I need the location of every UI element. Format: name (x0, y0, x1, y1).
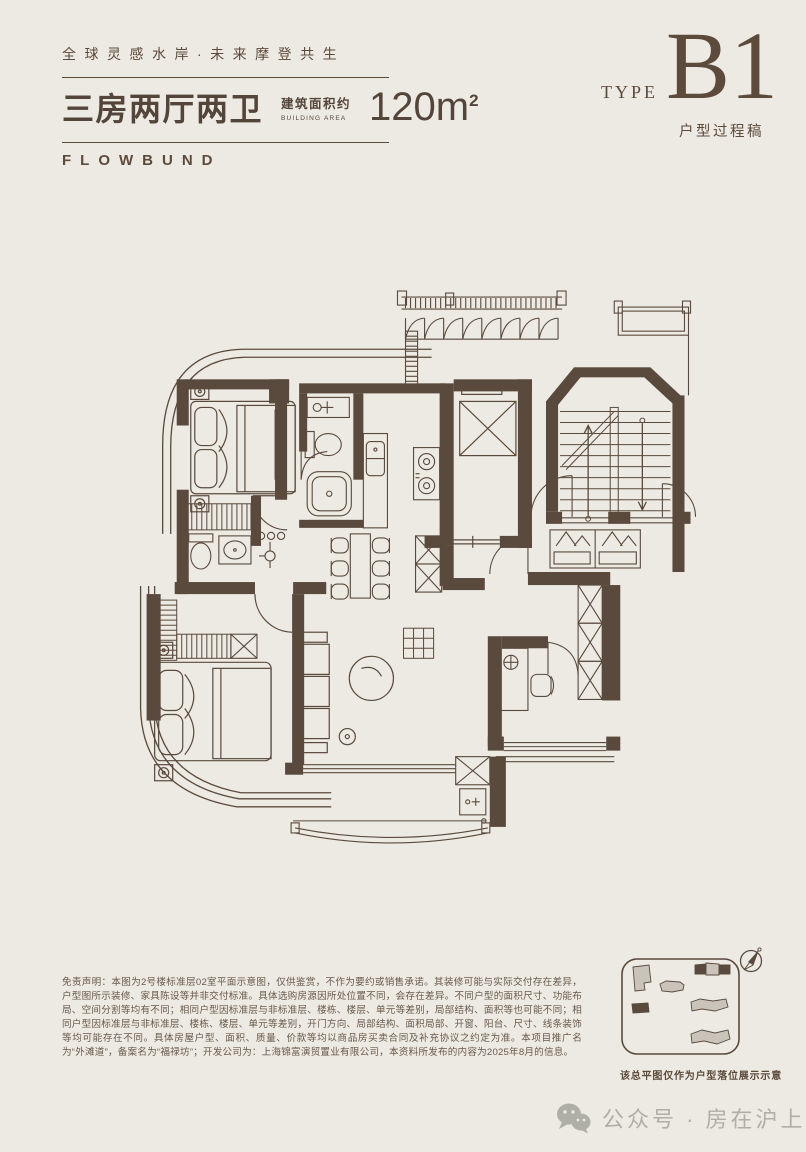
divider-bottom (62, 142, 389, 143)
highlighted-building (719, 965, 730, 974)
master-door (255, 594, 293, 632)
study-door (548, 642, 578, 674)
area-label-cn: 建筑面积约 (281, 93, 351, 112)
flyer-page: 全球灵感水岸·未来摩登共生 三房两厅两卫 建筑面积约 BUILDING AREA… (0, 0, 806, 1152)
disclaimer-text: 免责声明：本图为2号楼标准层02室平面示意图，仅供鉴赏，不作为要约或销售承诺。其… (62, 976, 582, 1059)
balcony-glass-curve (295, 828, 488, 843)
type-label: TYPE (601, 82, 658, 103)
compass-north-icon (741, 948, 762, 972)
type-code: B1 (666, 18, 778, 114)
desk-chair (531, 674, 551, 696)
desk (500, 648, 528, 710)
site-buildings (632, 963, 730, 1044)
dining-chairs (331, 538, 389, 599)
bathtub (307, 472, 351, 516)
highlighted-building (695, 964, 706, 974)
header: 全球灵感水岸·未来摩登共生 三房两厅两卫 建筑面积约 BUILDING AREA… (62, 44, 392, 169)
bathroom1 (301, 397, 351, 515)
side-table (404, 628, 434, 658)
watermark: 公众号 · 房在沪上 (556, 1102, 806, 1134)
master-bed (155, 662, 271, 760)
shower-head (265, 551, 275, 561)
wechat-icon (556, 1102, 592, 1134)
elevator (447, 389, 516, 548)
area-value: 120m2 (369, 87, 479, 127)
bay-window (504, 743, 606, 751)
brand-logotype: FLOWBUND (62, 152, 392, 169)
type-block: TYPE B1 户型过程稿 (608, 18, 778, 141)
unit-title: 三房两厅两卫 (62, 84, 263, 130)
balcony-slider (303, 765, 456, 773)
entry-closet (550, 530, 640, 568)
type-line: TYPE B1 (608, 18, 778, 114)
floor-vase (339, 729, 355, 745)
bathroom2 (189, 532, 285, 569)
balcony (291, 765, 490, 843)
dining-area (331, 534, 389, 599)
slogan: 全球灵感水岸·未来摩登共生 (62, 44, 392, 64)
living-room (293, 628, 433, 752)
area-superscript: 2 (469, 91, 478, 110)
highlighted-building (632, 1003, 649, 1013)
north-balcony-louvers (397, 291, 566, 387)
floor-plan-drawing (108, 283, 696, 855)
divider-top (62, 77, 389, 78)
watermark-text: 公众号 · 房在沪上 (602, 1102, 806, 1134)
master-bedroom (153, 594, 293, 781)
toilet (189, 534, 213, 542)
coffee-table (349, 656, 393, 700)
site-plan-caption: 该总平图仅作为户型落位展示示意 (620, 1067, 788, 1082)
type-note: 户型过程稿 (608, 120, 778, 141)
area-labels: 建筑面积约 BUILDING AREA (281, 93, 351, 122)
study (496, 642, 614, 761)
wardrobe (187, 504, 251, 530)
kitchen (363, 434, 439, 528)
area-label-en: BUILDING AREA (281, 115, 351, 122)
walls (147, 367, 691, 827)
title-row: 三房两厅两卫 建筑面积约 BUILDING AREA 120m2 (62, 85, 392, 129)
site-plan: 该总平图仅作为户型落位展示示意 (620, 938, 788, 1082)
dining-table (350, 534, 370, 598)
staircase (560, 407, 670, 521)
